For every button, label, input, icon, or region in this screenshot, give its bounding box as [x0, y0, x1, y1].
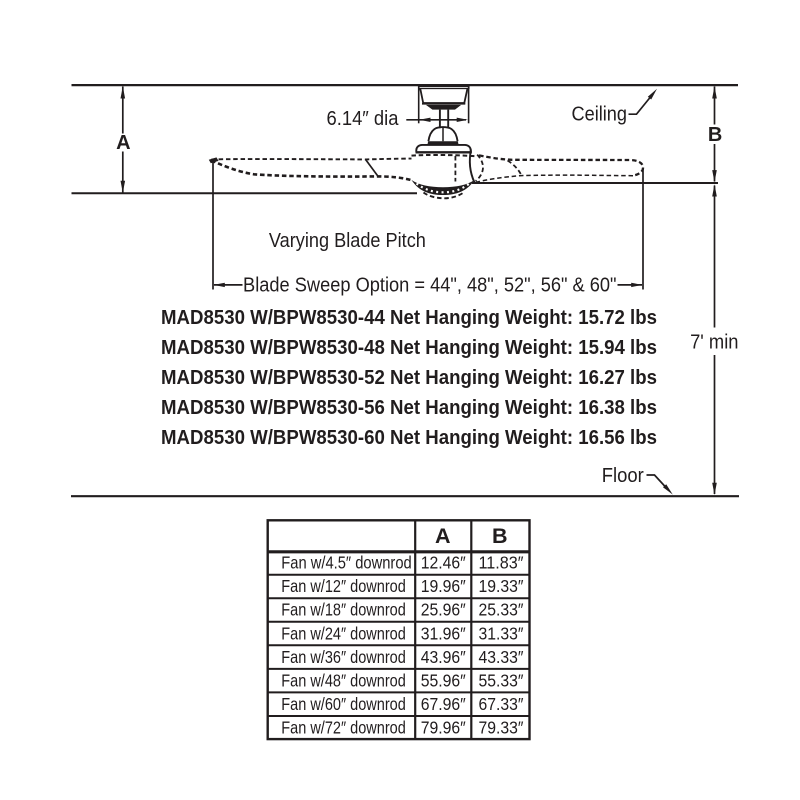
svg-text:7' min: 7' min	[690, 332, 738, 354]
svg-text:Varying Blade Pitch: Varying Blade Pitch	[269, 230, 426, 252]
svg-text:Fan w/4.5″ downrod: Fan w/4.5″ downrod	[281, 553, 411, 573]
svg-text:55.33″: 55.33″	[479, 670, 524, 690]
svg-text:67.33″: 67.33″	[479, 694, 524, 714]
svg-text:A: A	[116, 132, 130, 154]
svg-text:79.33″: 79.33″	[479, 718, 524, 738]
svg-text:B: B	[492, 524, 508, 548]
svg-text:12.46″: 12.46″	[421, 553, 466, 573]
svg-text:Fan w/72″ downrod: Fan w/72″ downrod	[281, 718, 406, 738]
svg-text:Floor: Floor	[602, 465, 644, 487]
svg-text:Blade Sweep Option = 44", 48",: Blade Sweep Option = 44", 48", 52", 56" …	[243, 274, 617, 296]
svg-text:Fan w/48″ downrod: Fan w/48″ downrod	[281, 670, 406, 690]
svg-text:Fan w/36″ downrod: Fan w/36″ downrod	[281, 647, 406, 667]
svg-text:43.96″: 43.96″	[421, 647, 466, 667]
svg-text:43.33″: 43.33″	[479, 647, 524, 667]
svg-text:Fan w/24″ downrod: Fan w/24″ downrod	[281, 623, 406, 643]
svg-text:MAD8530 W/BPW8530-44 Net Hangi: MAD8530 W/BPW8530-44 Net Hanging Weight:…	[161, 307, 657, 329]
svg-text:6.14″ dia: 6.14″ dia	[327, 108, 400, 130]
svg-text:19.33″: 19.33″	[479, 576, 524, 596]
svg-text:B: B	[708, 124, 722, 146]
svg-text:MAD8530 W/BPW8530-48 Net Hangi: MAD8530 W/BPW8530-48 Net Hanging Weight:…	[161, 337, 657, 359]
svg-text:11.83″: 11.83″	[479, 553, 524, 573]
svg-text:31.96″: 31.96″	[421, 623, 466, 643]
svg-text:25.96″: 25.96″	[421, 600, 466, 620]
svg-text:Fan w/60″ downrod: Fan w/60″ downrod	[281, 694, 406, 714]
svg-text:19.96″: 19.96″	[421, 576, 466, 596]
svg-text:MAD8530 W/BPW8530-60 Net Hangi: MAD8530 W/BPW8530-60 Net Hanging Weight:…	[161, 427, 657, 449]
svg-text:25.33″: 25.33″	[479, 600, 524, 620]
svg-text:MAD8530 W/BPW8530-56 Net Hangi: MAD8530 W/BPW8530-56 Net Hanging Weight:…	[161, 397, 657, 419]
svg-text:A: A	[435, 524, 451, 548]
svg-text:Fan w/18″ downrod: Fan w/18″ downrod	[281, 600, 406, 620]
svg-text:55.96″: 55.96″	[421, 670, 466, 690]
svg-text:Fan w/12″ downrod: Fan w/12″ downrod	[281, 576, 406, 596]
svg-text:79.96″: 79.96″	[421, 718, 466, 738]
svg-text:Ceiling: Ceiling	[572, 104, 628, 126]
svg-text:MAD8530 W/BPW8530-52 Net Hangi: MAD8530 W/BPW8530-52 Net Hanging Weight:…	[161, 367, 657, 389]
svg-text:31.33″: 31.33″	[479, 623, 524, 643]
svg-text:67.96″: 67.96″	[421, 694, 466, 714]
